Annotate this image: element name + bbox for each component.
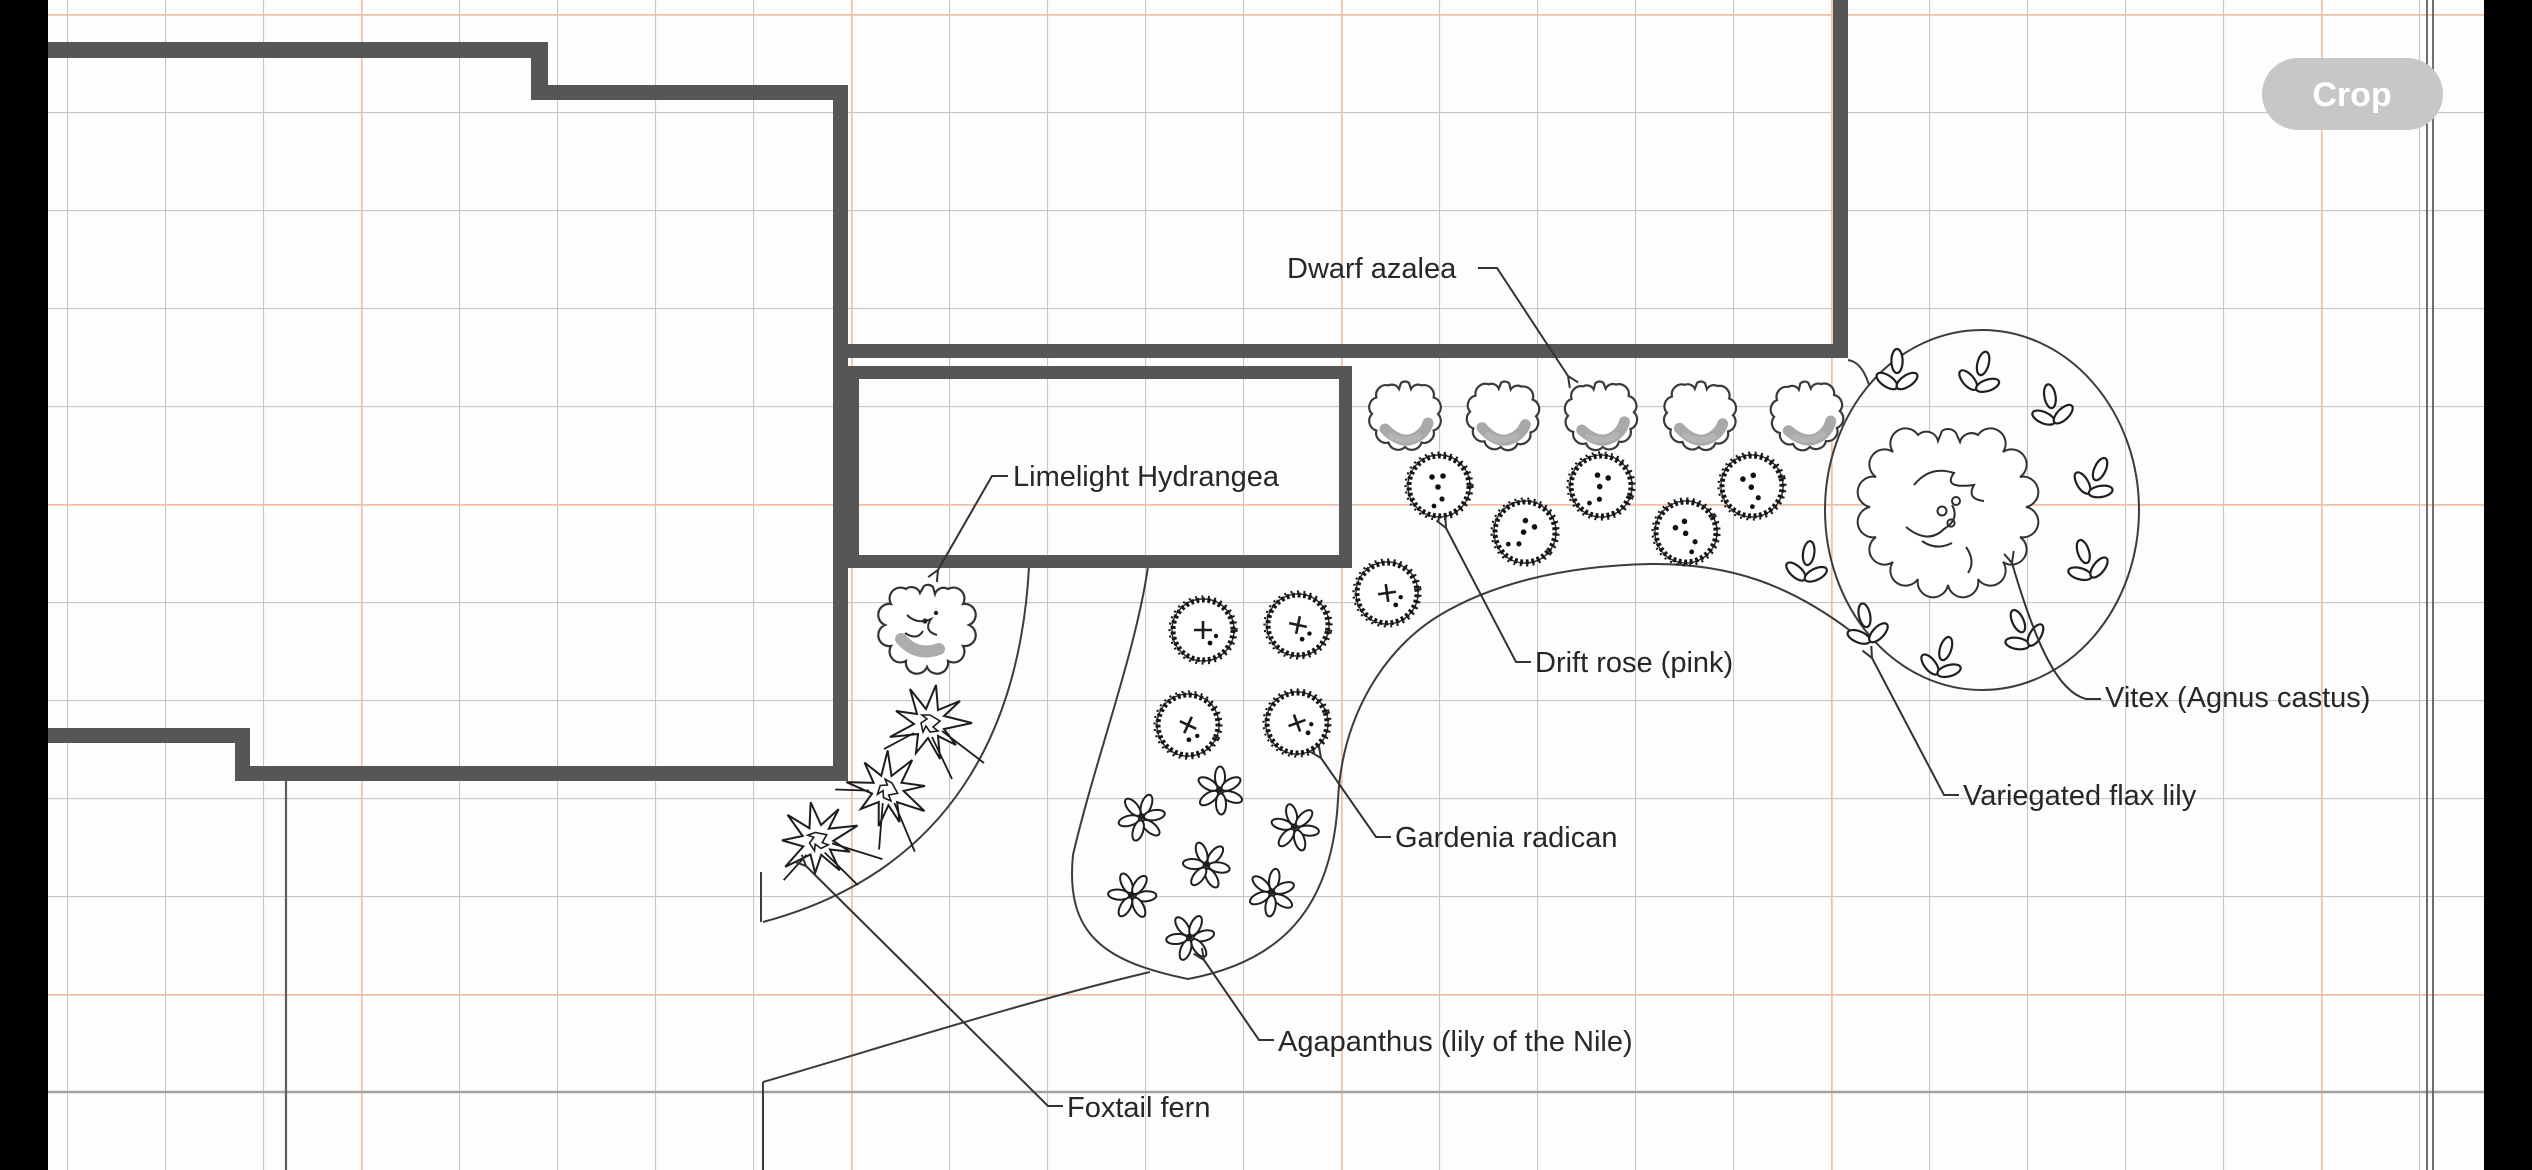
drift-rose-symbol: [1406, 453, 1473, 520]
label-vitex: Vitex (Agnus castus): [2105, 682, 2370, 714]
label-flax-lily: Variegated flax lily: [1963, 780, 2197, 812]
label-dwarf-azalea: Dwarf azalea: [1287, 253, 1457, 285]
landscape-plan-canvas: Dwarf azalea Limelight Hydrangea Drift r…: [0, 0, 2532, 1170]
crop-button-label[interactable]: Crop: [2312, 76, 2391, 114]
left-letterbox-bar: [0, 0, 48, 1170]
crop-button[interactable]: Crop: [2262, 58, 2443, 130]
label-limelight-hydrangea: Limelight Hydrangea: [1013, 461, 1280, 493]
right-letterbox-bar: [2484, 0, 2532, 1170]
label-agapanthus: Agapanthus (lily of the Nile): [1278, 1026, 1633, 1058]
grid-background: [0, 0, 2532, 1170]
dwarf-azalea-symbol: [1564, 380, 1639, 452]
label-gardenia: Gardenia radican: [1395, 822, 1617, 854]
label-drift-rose: Drift rose (pink): [1535, 647, 1733, 679]
limelight-hydrangea-symbol: [878, 585, 975, 674]
dwarf-azalea-symbol: [1663, 380, 1737, 451]
gardenia-symbol: [1170, 597, 1237, 664]
dwarf-azalea-symbol: [1369, 381, 1441, 449]
label-foxtail-fern: Foxtail fern: [1067, 1092, 1210, 1124]
